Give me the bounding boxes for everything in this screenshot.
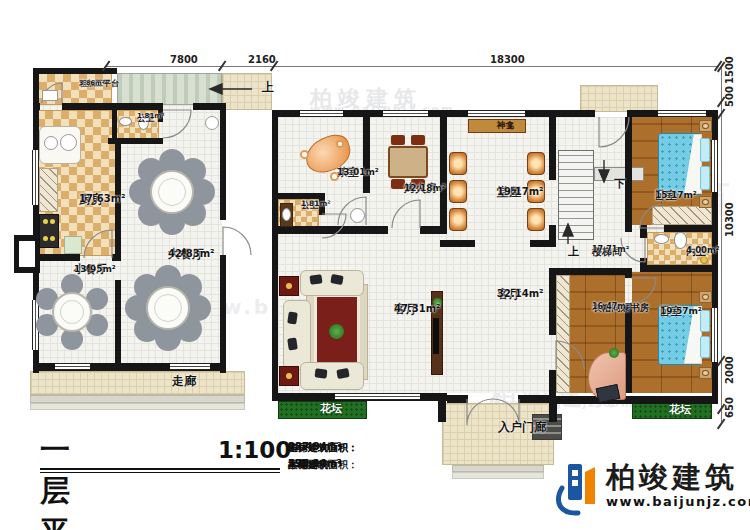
fire-table — [388, 146, 428, 178]
room-name: 神龛 — [497, 121, 514, 131]
bath-lamp — [700, 256, 708, 264]
title-underline — [40, 468, 280, 473]
window — [383, 110, 428, 117]
room-name: 入户门廊 — [498, 421, 546, 434]
nightstand — [699, 196, 712, 208]
hall-armchair — [527, 152, 545, 175]
rug-plant — [329, 324, 344, 339]
window — [468, 110, 525, 117]
wall-segment — [33, 254, 80, 261]
window — [658, 110, 706, 117]
bath-sink — [654, 234, 669, 244]
dim-value: 18300 — [490, 54, 525, 65]
room-name: 走廊 — [172, 375, 196, 388]
room-area: 13.95m² — [74, 264, 116, 274]
fridge — [64, 236, 82, 254]
stove-burner — [43, 219, 48, 224]
scale-text: 1:100 — [218, 437, 291, 463]
down-text: 下 — [614, 178, 625, 190]
sofa-cushion — [309, 274, 322, 285]
tea-cup — [336, 140, 344, 148]
room-area: 1.81m² — [301, 200, 331, 208]
room-area: 13.01m² — [337, 167, 379, 177]
window — [711, 308, 718, 362]
title-text: 一层平面图 — [40, 430, 72, 530]
wall-segment — [62, 103, 163, 110]
room-area: 15.17m² — [655, 190, 697, 200]
room-area: 4.00m² — [686, 246, 720, 256]
hall-armchair — [449, 152, 467, 175]
up-text: 上 — [568, 246, 579, 258]
dining-table-large — [146, 286, 190, 330]
chimney-inner — [19, 241, 35, 267]
wall-segment — [33, 103, 40, 110]
stove-burner — [43, 236, 48, 241]
wardrobe-bedroom-top — [652, 206, 712, 225]
prep-counter — [39, 168, 58, 212]
wall-segment — [549, 275, 556, 335]
pillow — [700, 138, 710, 162]
room-area: 16.47m² — [592, 303, 629, 312]
dim-value: 650 — [724, 397, 735, 418]
bath-basin — [282, 208, 291, 221]
room-area: 17.71m² — [592, 246, 629, 255]
window — [32, 300, 39, 350]
nightstand — [699, 120, 712, 132]
sofa-cushion — [287, 337, 298, 350]
wall-segment — [549, 117, 556, 180]
window — [300, 110, 343, 117]
corridor-step — [30, 403, 245, 410]
room-area: 3.86m² — [79, 80, 105, 87]
wall-segment — [440, 240, 475, 247]
fire-chair — [411, 135, 425, 145]
window — [32, 150, 39, 205]
hall-armchair — [449, 208, 467, 231]
floor-lamp — [350, 208, 365, 223]
room-area: 42.83m² — [168, 248, 214, 259]
room-area: 19.57m² — [660, 306, 702, 316]
nightstand — [699, 291, 712, 303]
side-table — [279, 276, 299, 296]
staircase-treads — [558, 150, 594, 240]
wall-segment — [220, 255, 226, 373]
floor-outdoor-stair-strip — [117, 73, 222, 105]
dining-table-small — [52, 292, 92, 332]
room-area: 1.81m² — [137, 113, 165, 121]
porch-step — [452, 472, 544, 479]
wall-segment — [440, 117, 447, 234]
fire-chair — [391, 179, 405, 189]
dimension-line-right — [721, 66, 722, 424]
up-text: 上 — [262, 81, 274, 94]
brand-logo-icon — [552, 458, 606, 520]
wall-segment — [447, 395, 468, 403]
sofa-cushion — [330, 274, 343, 285]
desk-plant — [609, 348, 619, 358]
dim-value: 500 — [724, 86, 735, 107]
wall-segment — [549, 398, 557, 422]
brand-name-text: 柏竣建筑 — [606, 458, 738, 498]
stove-burner — [50, 219, 55, 224]
wall-segment — [530, 240, 556, 247]
window — [711, 140, 718, 192]
porch-step — [452, 465, 544, 472]
dim-tick — [717, 418, 725, 429]
side-table — [279, 366, 299, 386]
room-area: 47.31m² — [394, 303, 440, 314]
kitchen-basin — [44, 136, 58, 150]
sofa-left — [283, 300, 311, 370]
wall-segment — [625, 117, 632, 225]
pillow — [700, 336, 710, 358]
wall-segment — [363, 117, 370, 193]
wash-basin — [119, 117, 132, 126]
nightstand — [699, 367, 712, 379]
wall-segment — [193, 103, 226, 110]
fire-chair — [391, 135, 405, 145]
room-area: 32.14m² — [497, 288, 543, 299]
dimension-line-top — [105, 66, 718, 67]
sink-counter — [42, 90, 58, 101]
floor-plan-canvas: 柏竣建筑 www.baijunjz.com 柏竣建筑 www.baijunjz.… — [0, 0, 750, 530]
window — [170, 363, 210, 370]
wall-segment — [278, 226, 388, 234]
window — [335, 393, 420, 400]
dim-value: 2160 — [248, 54, 276, 65]
window — [55, 363, 90, 370]
kitchen-basin — [60, 134, 77, 151]
wall-segment — [640, 265, 712, 272]
dining-table-large — [150, 170, 194, 214]
wardrobe-cloak — [556, 275, 570, 393]
wall-segment — [640, 225, 647, 238]
wall-segment — [664, 225, 712, 232]
wall-segment — [625, 225, 632, 232]
hall-armchair — [527, 208, 545, 231]
wall-segment — [556, 396, 718, 404]
sofa-cushion — [315, 368, 328, 378]
wall-segment — [549, 268, 632, 275]
brand-site-text: www.baijunjz.com — [606, 494, 750, 509]
dim-value: 7800 — [170, 54, 198, 65]
dim-value: 1500 — [724, 56, 735, 84]
corridor-step — [30, 395, 245, 403]
stove-burner — [50, 236, 55, 241]
room-area: 12.18m² — [404, 183, 446, 193]
tea-cup — [300, 150, 309, 159]
dim-value: 10300 — [724, 202, 735, 237]
sofa-cushion — [287, 311, 298, 324]
room-area: 17.63m² — [79, 193, 125, 204]
room-area: 19.17m² — [497, 186, 543, 197]
wall-segment — [549, 370, 556, 396]
stove — [39, 214, 59, 248]
dim-value: 2000 — [724, 356, 735, 384]
wall-segment — [438, 398, 446, 422]
pillow — [700, 166, 710, 190]
ceiling-lamp — [205, 116, 219, 130]
wall-segment — [112, 254, 121, 261]
hall-armchair — [449, 180, 467, 203]
wall-segment — [115, 280, 121, 363]
wall-segment — [220, 105, 226, 220]
wall-segment — [625, 272, 632, 278]
floor-corridor — [30, 371, 245, 395]
sofa-bottom — [300, 362, 364, 390]
room-name: 花坛 — [320, 403, 342, 415]
wall-segment — [272, 110, 278, 401]
stat-value: 98.49m² — [288, 441, 334, 452]
wall-segment — [625, 303, 632, 393]
tv — [433, 318, 439, 354]
stat-value: 3.6m — [288, 458, 316, 469]
room-name: 花坛 — [669, 404, 691, 416]
floor-back-porch — [580, 85, 658, 112]
